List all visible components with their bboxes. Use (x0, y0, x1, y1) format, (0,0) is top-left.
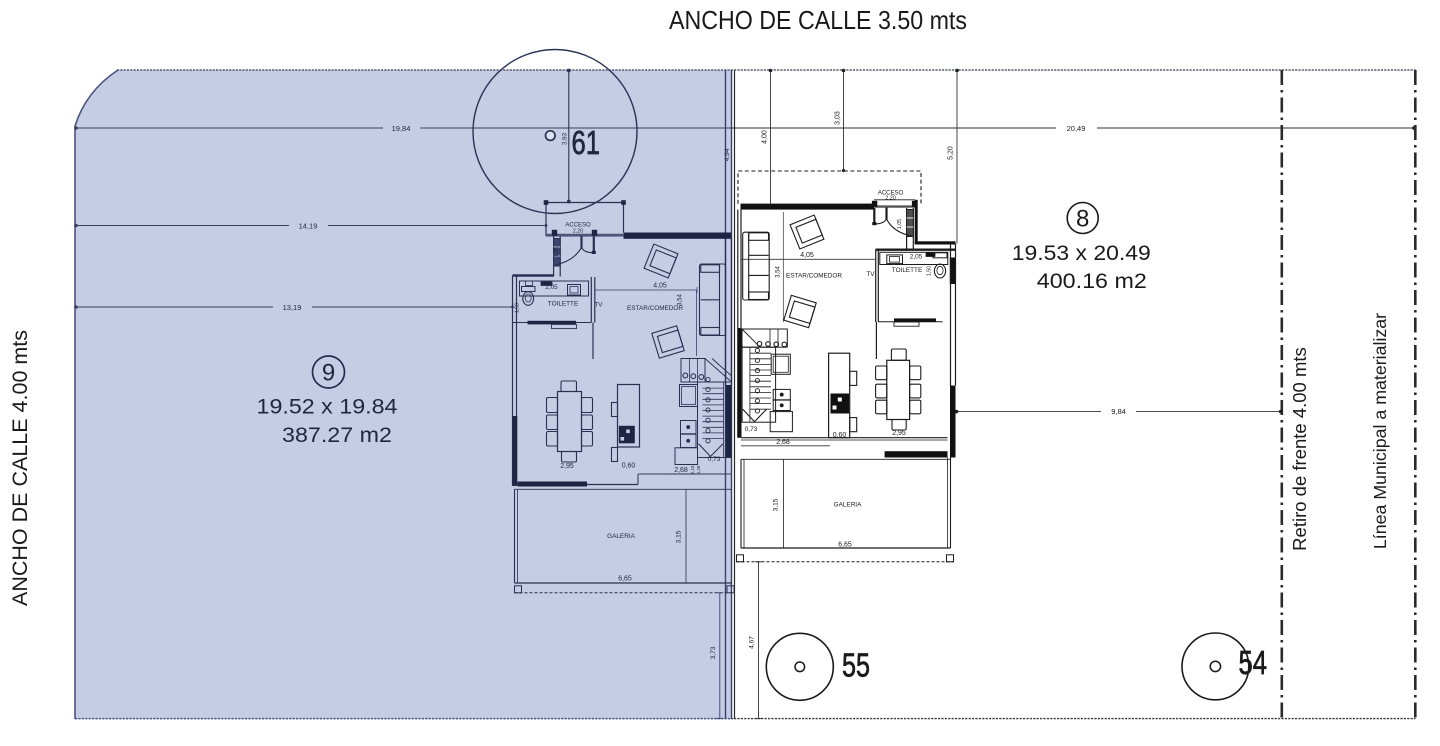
svg-text:3,54: 3,54 (776, 266, 782, 278)
svg-text:2,05: 2,05 (545, 284, 558, 291)
svg-text:8: 8 (1076, 206, 1089, 233)
svg-text:4,05: 4,05 (653, 283, 667, 290)
svg-text:ANCHO DE CALLE 4.00 mts: ANCHO DE CALLE 4.00 mts (8, 330, 32, 606)
svg-text:1,05: 1,05 (554, 247, 560, 257)
svg-text:54: 54 (1239, 644, 1268, 681)
svg-text:0,26: 0,26 (696, 465, 701, 474)
svg-text:Línea Municipal a materializar: Línea Municipal a materializar (1370, 313, 1390, 549)
svg-text:0,60: 0,60 (622, 463, 636, 470)
svg-text:13,19: 13,19 (283, 303, 302, 312)
svg-text:0,73: 0,73 (708, 456, 721, 463)
svg-text:2,05: 2,05 (910, 253, 923, 260)
svg-text:0,15: 0,15 (690, 465, 695, 474)
svg-text:5,20: 5,20 (948, 146, 955, 160)
svg-text:GALERIA: GALERIA (834, 502, 862, 509)
svg-text:TOILETTE: TOILETTE (892, 267, 922, 274)
svg-text:3,54: 3,54 (678, 294, 684, 306)
svg-text:4,05: 4,05 (800, 252, 814, 259)
svg-text:3,15: 3,15 (676, 530, 683, 543)
svg-text:20,49: 20,49 (1067, 124, 1086, 133)
svg-text:400.16 m2: 400.16 m2 (1037, 269, 1147, 293)
svg-text:4,94: 4,94 (724, 148, 731, 161)
svg-text:55: 55 (842, 647, 870, 684)
svg-text:0,73: 0,73 (745, 426, 758, 433)
svg-text:2,20: 2,20 (573, 229, 584, 235)
svg-text:9,84: 9,84 (1111, 407, 1126, 416)
svg-text:TOILETTE: TOILETTE (548, 301, 578, 308)
svg-text:2,95: 2,95 (560, 463, 574, 470)
svg-text:6,65: 6,65 (618, 576, 632, 583)
svg-text:19,84: 19,84 (392, 124, 411, 133)
svg-text:2,68: 2,68 (776, 439, 790, 446)
svg-text:4,67: 4,67 (749, 636, 756, 649)
svg-text:19.52 x 19.84: 19.52 x 19.84 (257, 395, 398, 419)
svg-text:2,95: 2,95 (892, 430, 906, 437)
svg-text:61: 61 (572, 124, 601, 161)
svg-text:2,68: 2,68 (674, 467, 688, 474)
svg-text:1,50: 1,50 (515, 303, 521, 313)
svg-text:0,60: 0,60 (833, 432, 847, 439)
svg-text:GALERIA: GALERIA (607, 533, 635, 540)
svg-text:4,00: 4,00 (762, 130, 769, 144)
svg-text:TV: TV (594, 302, 603, 309)
svg-text:ESTAR/COMEDOR: ESTAR/COMEDOR (627, 305, 683, 312)
svg-text:3,93: 3,93 (562, 132, 569, 145)
svg-text:387.27 m2: 387.27 m2 (282, 423, 392, 447)
svg-text:3,15: 3,15 (773, 498, 780, 511)
svg-text:9: 9 (322, 360, 335, 387)
svg-text:TV: TV (866, 271, 875, 278)
svg-text:14,19: 14,19 (299, 221, 318, 230)
svg-text:1,50: 1,50 (927, 266, 933, 276)
svg-text:6,65: 6,65 (838, 541, 852, 548)
svg-text:ANCHO DE CALLE 3.50 mts: ANCHO DE CALLE 3.50 mts (669, 5, 967, 35)
svg-text:3,73: 3,73 (710, 646, 717, 659)
svg-text:Retiro de frente 4.00 mts: Retiro de frente 4.00 mts (1289, 347, 1310, 551)
svg-text:3,03: 3,03 (835, 111, 842, 125)
svg-text:19.53 x 20.49: 19.53 x 20.49 (1012, 241, 1151, 265)
svg-text:ESTAR/COMEDOR: ESTAR/COMEDOR (786, 273, 842, 280)
svg-text:2,20: 2,20 (885, 196, 896, 202)
svg-text:1,05: 1,05 (897, 219, 903, 229)
